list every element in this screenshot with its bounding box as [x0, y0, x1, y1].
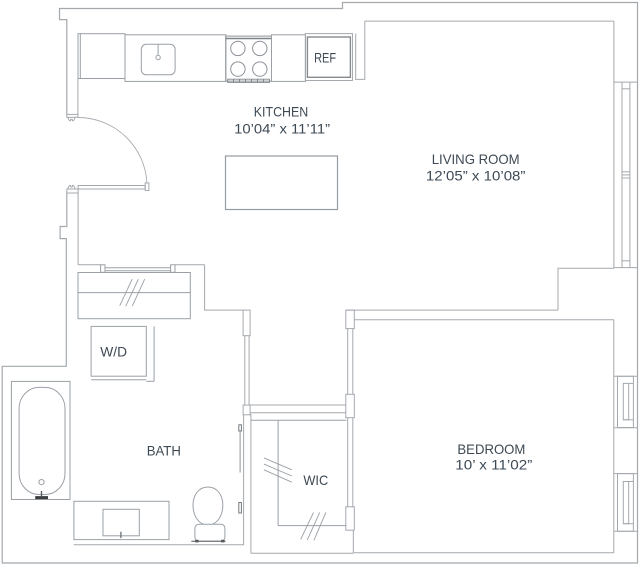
svg-text:12’05” x 10’08”: 12’05” x 10’08”: [426, 169, 526, 184]
svg-text:KITCHEN: KITCHEN: [254, 104, 309, 119]
svg-text:BEDROOM: BEDROOM: [457, 442, 525, 457]
svg-text:W/D: W/D: [100, 345, 127, 360]
svg-text:WIC: WIC: [303, 473, 328, 488]
svg-text:10’ x 11’02”: 10’ x 11’02”: [455, 457, 532, 472]
svg-text:10’04” x 11’11”: 10’04” x 11’11”: [234, 121, 330, 136]
svg-text:BATH: BATH: [147, 443, 181, 458]
svg-text:LIVING ROOM: LIVING ROOM: [432, 152, 520, 167]
svg-text:REF: REF: [314, 50, 336, 66]
